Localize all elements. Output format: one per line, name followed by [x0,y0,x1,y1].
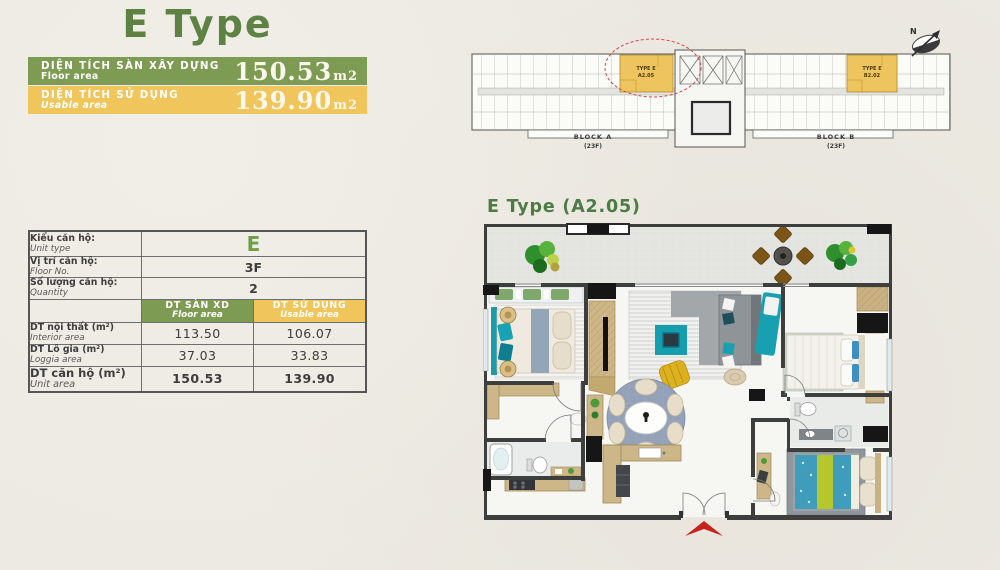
unit-a-highlight: TYPE E A2.05 [620,55,673,92]
interior-area-label-en: Interior area [30,334,141,344]
entry-arrow-icon [685,521,723,536]
unit-b-label-line1: TYPE E [862,66,882,72]
floor-area-labels: DIỆN TÍCH SÀN XÂY DỰNG Floor area [41,60,220,83]
usable-area-value: 139.90m2 [234,86,358,115]
floor-area-value: 150.53m2 [234,57,358,86]
toilet [533,457,547,473]
usable-area-unit: m2 [333,98,358,113]
loggia-area-label-en: Loggia area [30,356,141,366]
svg-text:(23F): (23F) [827,143,845,150]
floor-no-label-en: Floor No. [30,268,141,278]
appliance-tower [616,465,630,497]
svg-text:BLOCK A: BLOCK A [574,133,613,141]
svg-text:(23F): (23F) [584,143,602,150]
unit-a-label-line2: A2.05 [638,73,655,79]
table-row: Vị trí căn hộ:Floor No. 3F [29,257,366,278]
table-row: DT nội thất (m²)Interior area 113.50 106… [29,322,366,344]
table-row: DT căn hộ (m²)Unit area 150.53 139.90 [29,366,366,391]
table-row: DT Lô gia (m²)Loggia area 37.03 33.83 [29,344,366,366]
table-row: Số lượng căn hộ:Quantity 2 [29,278,366,299]
brochure-page: E Type DIỆN TÍCH SÀN XÂY DỰNG Floor area… [0,0,1000,570]
unit-area-label-vi: DT căn hộ (m²) [30,367,141,380]
empty-header-cell [29,299,141,322]
unit-area-floor-value: 150.53 [141,366,253,391]
stove [509,480,535,490]
coffee-table [655,325,687,355]
interior-area-floor-value: 113.50 [141,322,253,344]
pouf [724,369,746,385]
block-b-label: BLOCK B (23F) [817,133,855,150]
floor-area-unit: m2 [333,69,358,84]
unit-info-table: Kiểu căn hộ:Unit type E Vị trí căn hộ:Fl… [28,230,367,393]
wardrobe-dark [857,313,888,333]
interior-area-usable-value: 106.07 [254,322,366,344]
usable-area-label-en: Usable area [41,101,179,111]
floor-plan [483,223,893,545]
unit-type-value: E [141,231,366,257]
sofa [719,295,761,368]
elevator-core [675,50,745,147]
page-title: E Type [28,2,367,46]
toilet [800,403,816,416]
unit-b-highlight: TYPE E B2.02 [847,55,897,92]
compass-n-label: N [910,27,917,36]
unit-type-label-en: Unit type [30,245,141,255]
unit-b-label-line2: B2.02 [864,73,881,79]
loggia-area-usable-value: 33.83 [254,344,366,366]
usable-area-labels: DIỆN TÍCH SỬ DỤNG Usable area [41,89,179,112]
floor-area-label-en: Floor area [41,72,220,82]
unit-area-usable-value: 139.90 [254,366,366,391]
column-header-floor-area: DT SÀN XDFloor area [141,299,253,322]
floor-area-banner: DIỆN TÍCH SÀN XÂY DỰNG Floor area 150.53… [28,57,367,85]
block-a-label: BLOCK A (23F) [574,133,613,150]
floor-plan-heading: E Type (A2.05) [487,197,641,217]
tv-divider [589,301,615,396]
quantity-label-en: Quantity [30,289,141,299]
site-plan: TYPE E A2.05 TYPE E B2.02 N BLOCK A (23F… [468,22,960,164]
compass: N [910,27,942,56]
kitchen-sink [639,448,661,458]
usable-area-banner: DIỆN TÍCH SỬ DỤNG Usable area 139.90m2 [28,86,367,114]
vanity [799,429,833,440]
floor-no-value: 3F [141,257,366,278]
master-bed-headboard [491,307,497,375]
unit-area-label-en: Unit area [30,380,141,391]
svg-text:BLOCK B: BLOCK B [817,133,855,141]
quantity-value: 2 [141,278,366,299]
unit-a-label-line1: TYPE E [636,66,656,72]
table-row: Kiểu căn hộ:Unit type E [29,231,366,257]
unit-type-label-vi: Kiểu căn hộ: [30,234,141,245]
column-header-usable-area: DT SỬ DỤNGUsable area [254,299,366,322]
table-header-row: DT SÀN XDFloor area DT SỬ DỤNGUsable are… [29,299,366,322]
tv-screen [603,317,608,371]
loggia-area-floor-value: 37.03 [141,344,253,366]
